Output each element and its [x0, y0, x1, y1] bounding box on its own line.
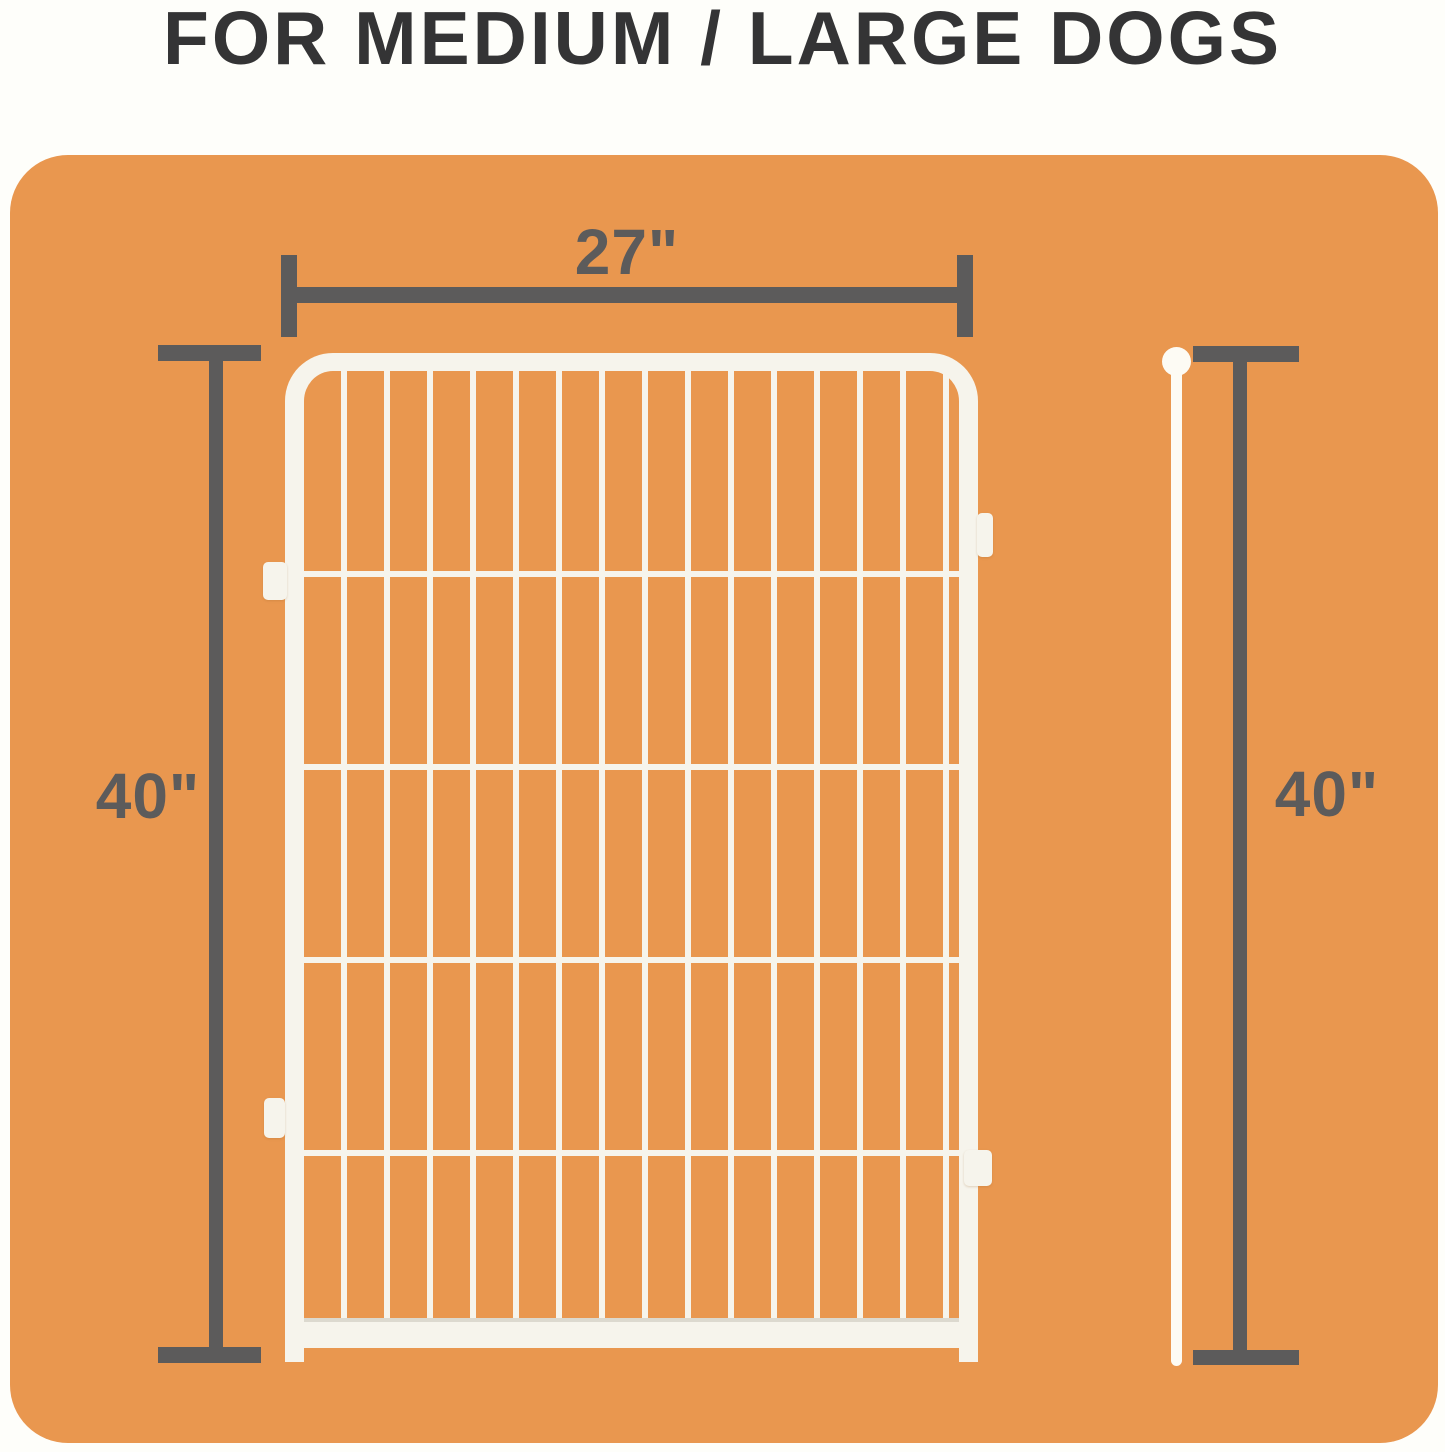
width-dimension-label: 27": [477, 220, 777, 284]
fence-connector-tab-lower-right: [964, 1150, 992, 1186]
product-dimension-image: FOR MEDIUM / LARGE DOGS 27" 40" 40": [0, 0, 1445, 1452]
page-title: FOR MEDIUM / LARGE DOGS: [0, 0, 1445, 82]
pin-stem: [1171, 368, 1182, 1366]
pin-head-icon: [1162, 347, 1191, 376]
width-dimension-cap-left: [281, 255, 297, 337]
width-dimension-bar: [281, 287, 973, 303]
fence-bottom-rail: [302, 1322, 961, 1348]
fence-connector-tab-upper-right: [977, 513, 993, 557]
right-height-cap-bottom: [1193, 1350, 1299, 1365]
width-dimension-cap-right: [957, 255, 973, 337]
fence-wire-grid: [304, 371, 959, 1322]
pen-panel-illustration: [285, 353, 978, 1348]
fence-connector-tab-lower-left: [264, 1098, 285, 1138]
fence-connector-tab-upper-left: [263, 562, 287, 600]
fence-foot-left: [285, 1347, 304, 1362]
fence-foot-right: [959, 1347, 978, 1362]
right-height-dimension-label: 40": [1227, 762, 1427, 826]
left-height-bar: [209, 353, 223, 1359]
right-height-bar: [1233, 354, 1247, 1358]
left-height-cap-bottom: [158, 1347, 261, 1363]
